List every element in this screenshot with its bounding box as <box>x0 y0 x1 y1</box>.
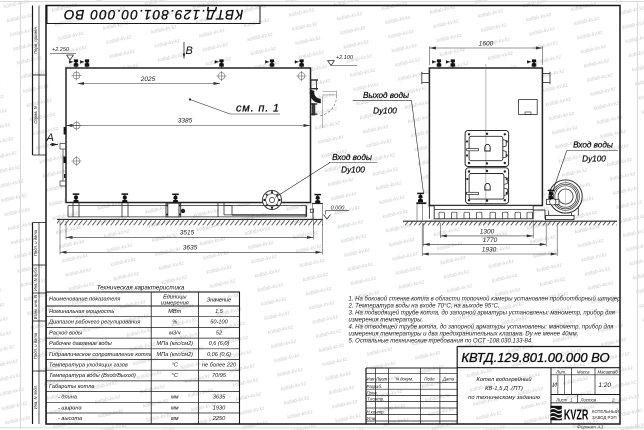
svg-text:Техническая характеристика: Техническая характеристика <box>97 285 185 292</box>
svg-text:Вход воды: Вход воды <box>332 153 372 162</box>
svg-text:4. На отводящей трубе котла,: 4. На отводящей трубе котла, до запорной… <box>349 323 615 330</box>
svg-text:Инв. N дубл.: Инв. N дубл. <box>33 267 38 291</box>
svg-text:Габариты котла: Габариты котла <box>49 384 94 390</box>
svg-text:3635: 3635 <box>183 245 198 252</box>
svg-text:Пров.: Пров. <box>367 390 378 395</box>
svg-text:измерения: измерения <box>161 301 189 307</box>
svg-text:мм: мм <box>171 395 179 401</box>
svg-text:мм: мм <box>171 405 179 411</box>
svg-text:1600: 1600 <box>479 41 494 48</box>
svg-text:Листов: Листов <box>580 397 597 402</box>
svg-text:Лист: Лист <box>555 397 567 402</box>
svg-text:Подп. и дата: Подп. и дата <box>33 229 38 256</box>
svg-text:КВТД.129.801.00.000 ВО: КВТД.129.801.00.000 ВО <box>63 7 243 22</box>
svg-text:Dy100: Dy100 <box>582 155 606 164</box>
svg-text:3635: 3635 <box>213 395 226 401</box>
svg-text:мм: мм <box>171 416 179 422</box>
svg-text:Выход воды: Выход воды <box>363 91 409 100</box>
svg-text:52: 52 <box>216 330 223 336</box>
svg-text:- длина: - длина <box>58 395 77 401</box>
svg-text:0,6 (6,0): 0,6 (6,0) <box>209 341 230 347</box>
svg-text:Дата: Дата <box>442 377 455 382</box>
svg-text:Рабочее давление воды: Рабочее давление воды <box>49 341 112 347</box>
svg-text:не более 220: не более 220 <box>202 363 237 369</box>
svg-text:2250: 2250 <box>212 416 226 422</box>
svg-text:1:20: 1:20 <box>598 382 611 389</box>
svg-text:70/95: 70/95 <box>212 373 227 379</box>
svg-text:Справ. N: Справ. N <box>33 105 38 123</box>
svg-text:Номинальная мощность: Номинальная мощность <box>49 309 114 315</box>
svg-text:КВ-1,5 Д .(ПТ): КВ-1,5 Д .(ПТ) <box>485 386 523 392</box>
svg-text:Расход воды: Расход воды <box>49 330 82 336</box>
svg-text:1. На боковой стенке котла в: 1. На боковой стенке котла в области топ… <box>349 295 622 302</box>
svg-text:Инв. N подл.: Инв. N подл. <box>33 385 38 409</box>
svg-text:1,5: 1,5 <box>215 309 224 315</box>
svg-text:1930: 1930 <box>482 247 497 254</box>
svg-text:Температура воды (Вход/Выход): Температура воды (Вход/Выход) <box>49 373 136 379</box>
svg-text:КВТД.129.801.00.000 ВО: КВТД.129.801.00.000 ВО <box>461 350 609 365</box>
svg-text:измерения температуры.: измерения температуры. <box>349 317 424 323</box>
svg-text:1300: 1300 <box>480 228 495 235</box>
svg-text:А: А <box>46 132 54 144</box>
svg-text:Масштаб: Масштаб <box>597 369 618 374</box>
svg-text:МПа (кгс/см2): МПа (кгс/см2) <box>157 341 194 347</box>
svg-text:Изм: Изм <box>367 377 375 382</box>
svg-text:МПа (кгс/см2): МПа (кгс/см2) <box>157 352 194 358</box>
svg-text:2025: 2025 <box>140 76 156 83</box>
svg-text:м3/ч: м3/ч <box>169 330 180 336</box>
svg-text:КОТЕЛЬНЫЙ: КОТЕЛЬНЫЙ <box>592 409 619 414</box>
svg-text:И: И <box>552 382 557 389</box>
svg-text:+2.100: +2.100 <box>336 55 354 61</box>
svg-text:см. п. 1: см. п. 1 <box>236 103 280 115</box>
svg-text:50-100: 50-100 <box>210 320 228 326</box>
svg-text:0,06 (0,6): 0,06 (0,6) <box>207 352 231 358</box>
svg-text:- высота: - высота <box>58 416 82 422</box>
svg-text:измерения температуры и два пр: измерения температуры и два предохраните… <box>349 331 579 337</box>
svg-text:Подп. и дата: Подп. и дата <box>33 332 38 359</box>
svg-text:по техническому заданию: по техническому заданию <box>468 395 540 401</box>
svg-text:В: В <box>186 45 193 57</box>
svg-text:Н.контр.: Н.контр. <box>367 410 385 415</box>
svg-text:Dy100: Dy100 <box>373 107 397 116</box>
svg-text:%: % <box>172 320 177 326</box>
svg-text:Масса: Масса <box>577 369 590 374</box>
svg-text:Диапазон рабочего регулировани: Диапазон рабочего регулирования <box>48 320 140 326</box>
svg-text:N докум.: N докум. <box>396 377 413 382</box>
svg-text:KVZR: KVZR <box>564 406 589 423</box>
svg-text:°С: °С <box>172 373 179 379</box>
svg-text:2. Температура воды на входе: 2. Температура воды на входе 70°С, на вы… <box>348 303 500 309</box>
svg-text:Лит.: Лит. <box>555 369 566 374</box>
svg-text:+2.250: +2.250 <box>52 47 70 53</box>
svg-text:Вход воды: Вход воды <box>573 141 613 150</box>
svg-text:Dy100: Dy100 <box>341 166 365 175</box>
svg-text:Утв.: Утв. <box>367 416 377 421</box>
svg-text:3515: 3515 <box>180 230 195 237</box>
svg-text:1930: 1930 <box>213 405 226 411</box>
svg-text:- ширина: - ширина <box>58 405 82 411</box>
svg-text:Перв. примен.: Перв. примен. <box>33 26 38 54</box>
svg-text:МВт: МВт <box>168 309 181 315</box>
svg-text:ЗАВОД РЭП: ЗАВОД РЭП <box>592 415 617 420</box>
svg-text:3. На подводящей трубе котла,: 3. На подводящей трубе котла, до запорно… <box>349 309 616 316</box>
svg-text:Т.контр.: Т.контр. <box>367 397 384 402</box>
svg-text:Температура уходящих газов: Температура уходящих газов <box>49 363 128 369</box>
svg-text:Разраб.: Разраб. <box>367 384 383 389</box>
svg-text:5. Остальные технические треб: 5. Остальные технические требования по О… <box>349 338 533 344</box>
svg-text:Лист: Лист <box>375 377 387 382</box>
svg-text:1770: 1770 <box>483 237 498 244</box>
svg-text:Взам. инв. N: Взам. инв. N <box>33 294 38 319</box>
svg-text:°С: °С <box>172 363 179 369</box>
svg-text:3385: 3385 <box>178 118 193 125</box>
svg-text:Подп.: Подп. <box>424 377 435 382</box>
svg-text:Гидравлическое сопротивление к: Гидравлическое сопротивление котла <box>49 352 152 358</box>
svg-text:Значение: Значение <box>207 298 232 304</box>
svg-text:Котел водогрейный: Котел водогрейный <box>476 376 532 383</box>
svg-text:Формат А3: Формат А3 <box>577 424 604 430</box>
svg-text:Наименование показателя: Наименование показателя <box>49 297 120 303</box>
